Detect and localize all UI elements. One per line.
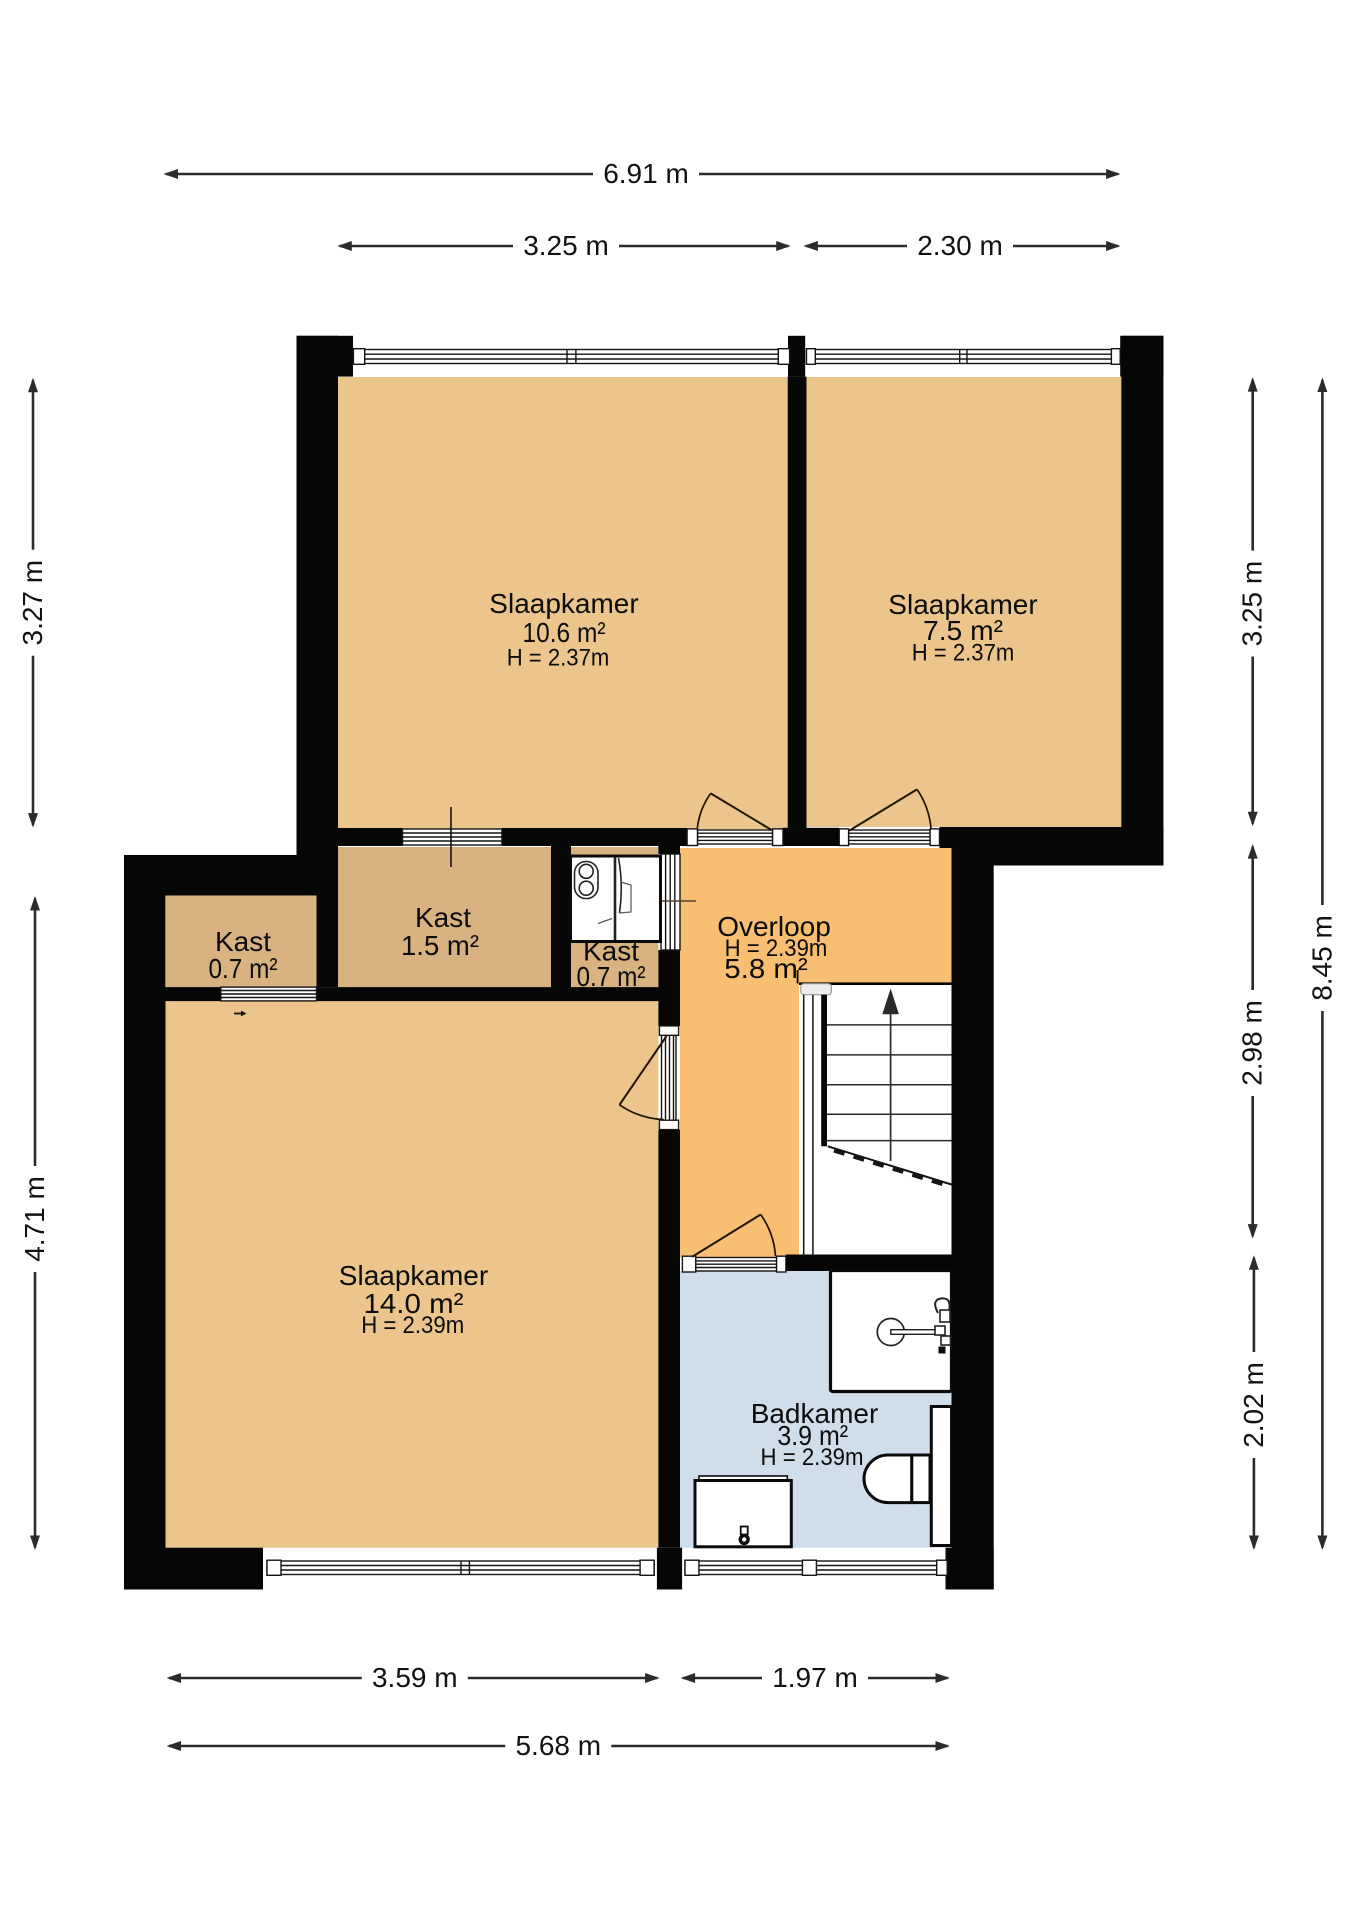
svg-text:0.7 m²: 0.7 m² xyxy=(209,953,278,984)
svg-text:1.5 m²: 1.5 m² xyxy=(401,930,479,961)
svg-text:8.45 m: 8.45 m xyxy=(1306,915,1337,1001)
svg-text:H = 2.39m: H = 2.39m xyxy=(361,1312,464,1339)
svg-text:3.59 m: 3.59 m xyxy=(372,1662,458,1693)
svg-text:4.71 m: 4.71 m xyxy=(19,1176,50,1262)
svg-text:H = 2.37m: H = 2.37m xyxy=(912,640,1015,667)
svg-text:3.25 m: 3.25 m xyxy=(1237,561,1268,647)
svg-text:2.30 m: 2.30 m xyxy=(917,230,1003,261)
svg-text:5.68 m: 5.68 m xyxy=(515,1730,601,1761)
svg-text:H = 2.39m: H = 2.39m xyxy=(761,1444,864,1471)
svg-text:10.6 m²: 10.6 m² xyxy=(523,617,606,648)
svg-text:3.25 m: 3.25 m xyxy=(523,230,609,261)
svg-text:1.97 m: 1.97 m xyxy=(772,1662,858,1693)
svg-text:3.27 m: 3.27 m xyxy=(17,560,48,646)
svg-text:5.8 m²: 5.8 m² xyxy=(724,953,808,984)
svg-text:2.02 m: 2.02 m xyxy=(1238,1362,1269,1448)
svg-text:6.91 m: 6.91 m xyxy=(603,158,689,189)
svg-text:Kast: Kast xyxy=(415,902,471,933)
svg-text:Slaapkamer: Slaapkamer xyxy=(489,588,638,619)
svg-text:2.98 m: 2.98 m xyxy=(1237,1000,1268,1086)
svg-text:H = 2.37m: H = 2.37m xyxy=(507,645,610,672)
svg-text:0.7 m²: 0.7 m² xyxy=(577,961,646,992)
svg-text:Slaapkamer: Slaapkamer xyxy=(339,1260,488,1291)
